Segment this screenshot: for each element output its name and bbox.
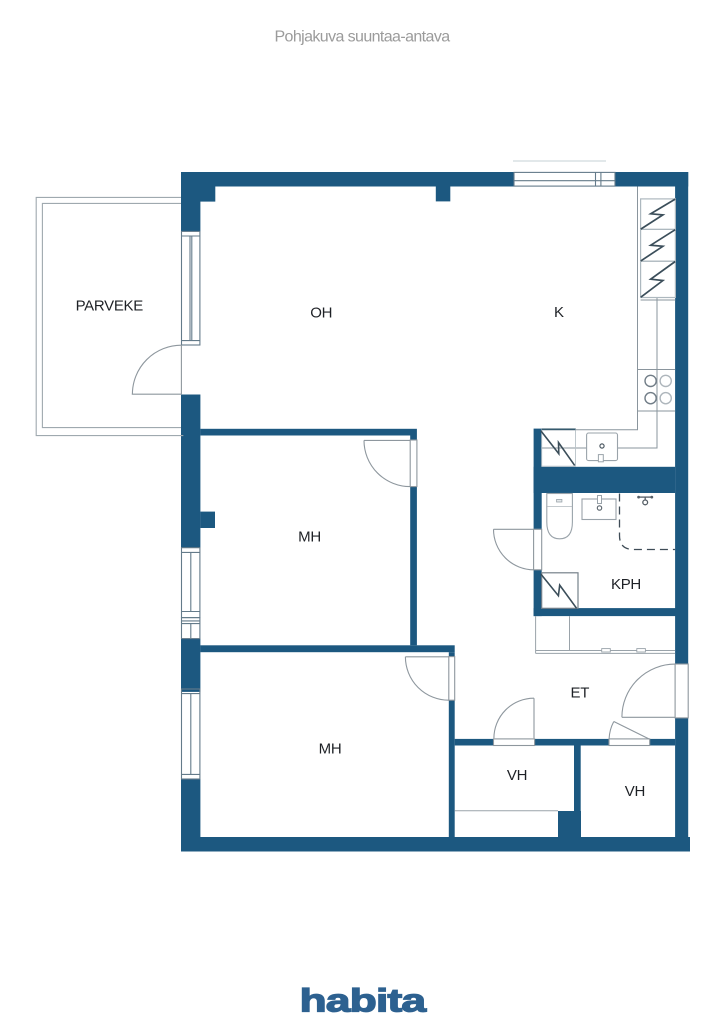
svg-text:KPH: KPH xyxy=(611,576,641,593)
svg-text:ET: ET xyxy=(571,685,590,702)
svg-text:habita: habita xyxy=(300,983,427,1019)
svg-text:MH: MH xyxy=(319,740,342,757)
svg-text:VH: VH xyxy=(507,767,527,784)
svg-text:PARVEKE: PARVEKE xyxy=(76,297,144,314)
svg-text:K: K xyxy=(554,304,564,321)
svg-text:Pohjakuva suuntaa-antava: Pohjakuva suuntaa-antava xyxy=(274,29,450,46)
svg-text:VH: VH xyxy=(625,783,645,800)
svg-text:OH: OH xyxy=(310,304,332,321)
svg-text:MH: MH xyxy=(298,528,321,545)
